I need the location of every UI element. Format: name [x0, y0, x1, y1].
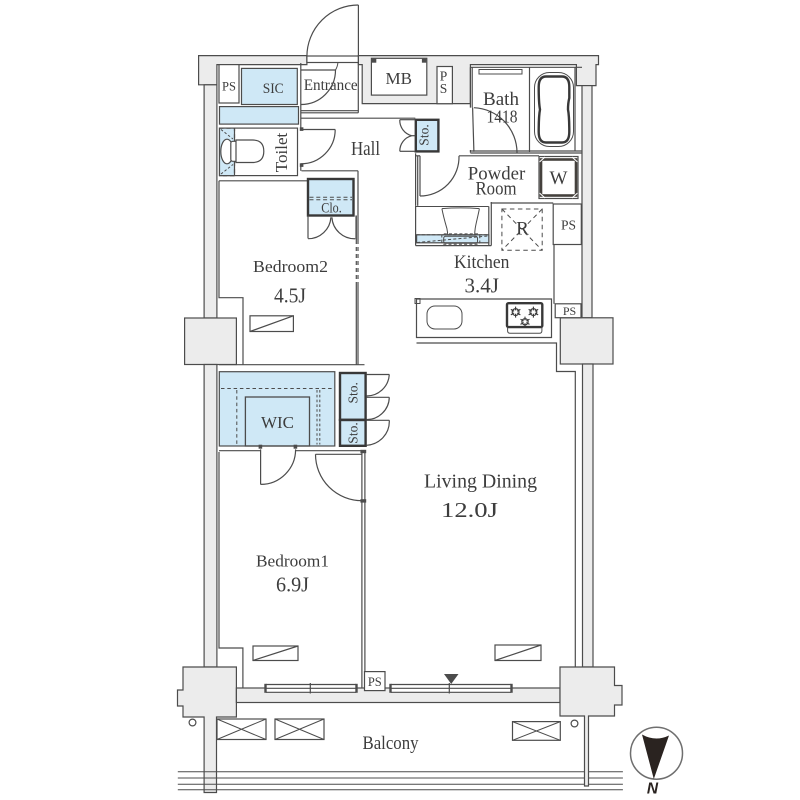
- svg-text:PS: PS: [563, 304, 576, 318]
- svg-text:Entrance: Entrance: [304, 77, 358, 94]
- svg-text:Toilet: Toilet: [272, 133, 291, 173]
- svg-text:Bedroom1: Bedroom1: [256, 552, 329, 571]
- svg-text:Sto.: Sto.: [346, 382, 361, 403]
- svg-text:PS: PS: [561, 218, 576, 233]
- svg-text:6.9J: 6.9J: [276, 573, 309, 597]
- svg-text:WIC: WIC: [261, 413, 294, 432]
- svg-text:4.5J: 4.5J: [274, 284, 306, 308]
- svg-text:Room: Room: [476, 179, 517, 200]
- svg-text:Living Dining: Living Dining: [424, 472, 537, 493]
- svg-text:Hall: Hall: [351, 138, 380, 160]
- svg-text:1418: 1418: [487, 107, 518, 127]
- svg-text:MB: MB: [385, 69, 411, 88]
- svg-text:Bedroom2: Bedroom2: [253, 257, 328, 276]
- svg-text:PS: PS: [222, 80, 236, 94]
- svg-text:Clo.: Clo.: [321, 201, 342, 217]
- svg-text:Kitchen: Kitchen: [454, 252, 510, 273]
- svg-text:N: N: [647, 781, 659, 798]
- svg-text:12.0J: 12.0J: [441, 498, 498, 522]
- svg-text:3.4J: 3.4J: [464, 273, 499, 297]
- svg-text:S: S: [440, 81, 448, 96]
- svg-text:Sto.: Sto.: [346, 422, 361, 443]
- svg-text:Balcony: Balcony: [363, 733, 419, 754]
- svg-text:W: W: [550, 168, 568, 189]
- svg-text:R: R: [516, 219, 529, 240]
- svg-text:SIC: SIC: [263, 81, 284, 97]
- svg-text:Sto.: Sto.: [417, 124, 432, 145]
- svg-text:PS: PS: [368, 675, 382, 689]
